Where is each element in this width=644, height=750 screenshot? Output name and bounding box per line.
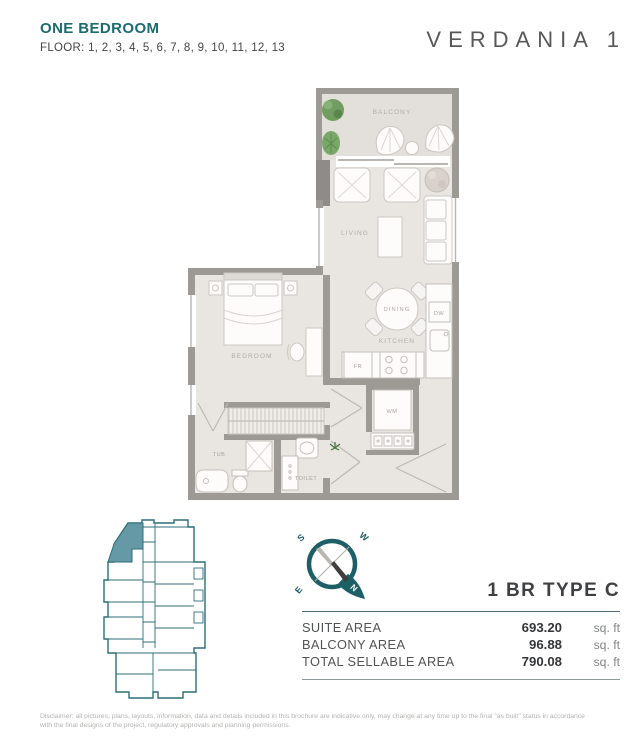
washbasin-icon xyxy=(296,438,318,458)
washer-label: WM xyxy=(387,409,398,415)
balcony-label: BALCONY xyxy=(373,109,412,116)
area-label: TOTAL SELLABLE AREA xyxy=(302,654,484,669)
brand-logo: VERDANIA 1 xyxy=(426,27,626,53)
nightstand-icon xyxy=(209,281,222,295)
chair-icon xyxy=(290,343,304,361)
nightstand-icon xyxy=(284,281,297,295)
sofa-icon xyxy=(424,196,452,264)
headboard-icon xyxy=(224,273,282,280)
area-label: BALCONY AREA xyxy=(302,637,484,652)
page-title: ONE BEDROOM xyxy=(40,20,159,37)
sliding-door xyxy=(336,156,450,167)
living-label: LIVING xyxy=(341,230,369,237)
area-row-balcony: BALCONY AREA 96.88 sq. ft xyxy=(302,637,620,654)
divider xyxy=(302,611,620,612)
area-unit: sq. ft xyxy=(562,621,620,635)
bathtub-icon xyxy=(196,470,228,492)
floor-plan: BALCONY LIVING DINING KITCHEN BEDROOM TU… xyxy=(180,84,464,506)
brochure-page: ONE BEDROOM FLOOR: 1, 2, 3, 4, 5, 6, 7, … xyxy=(0,0,644,750)
disclaimer: Disclaimer: all pictures, plans, layouts… xyxy=(40,712,618,730)
coffee-table-icon xyxy=(378,217,402,257)
armchair-icon xyxy=(384,168,420,202)
compass-west: W xyxy=(357,530,370,543)
disclaimer-line: with the final designs of the project, r… xyxy=(40,721,618,730)
area-label: SUITE AREA xyxy=(302,620,484,635)
toilet-icon xyxy=(232,470,248,492)
area-value: 693.20 xyxy=(484,620,562,635)
area-value: 96.88 xyxy=(484,637,562,652)
desk-icon xyxy=(306,328,322,376)
building-key-plan xyxy=(95,518,217,710)
area-value: 790.08 xyxy=(484,654,562,669)
shower-icon xyxy=(246,441,272,471)
unit-type-label: 1 BR TYPE C xyxy=(302,580,620,602)
area-unit: sq. ft xyxy=(562,638,620,652)
plant-icon xyxy=(425,168,449,192)
side-table-icon xyxy=(406,142,419,155)
disclaimer-line: Disclaimer: all pictures, plans, layouts… xyxy=(40,712,618,721)
area-row-suite: SUITE AREA 693.20 sq. ft xyxy=(302,620,620,637)
compass-south: S xyxy=(295,532,306,543)
fridge-label: FR xyxy=(354,364,362,370)
dishwasher-label: DW xyxy=(434,311,445,317)
bedroom-label: BEDROOM xyxy=(231,353,272,360)
toilet-label: TOILET xyxy=(295,476,318,482)
tub-label: TUB xyxy=(213,452,226,458)
dining-label: DINING xyxy=(384,307,411,313)
divider xyxy=(302,679,620,680)
area-table: 1 BR TYPE C SUITE AREA 693.20 sq. ft BAL… xyxy=(302,580,620,680)
area-unit: sq. ft xyxy=(562,655,620,669)
stove-icon xyxy=(380,352,416,378)
armchair-icon xyxy=(334,168,370,202)
floors-list: FLOOR: 1, 2, 3, 4, 5, 6, 7, 8, 9, 10, 11… xyxy=(40,42,285,54)
kitchen-label: KITCHEN xyxy=(379,338,415,345)
area-row-total: TOTAL SELLABLE AREA 790.08 sq. ft xyxy=(302,654,620,671)
